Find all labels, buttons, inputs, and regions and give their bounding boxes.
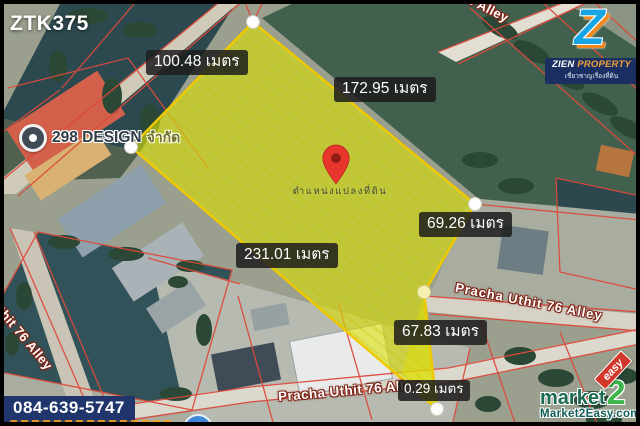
brand-word-zien: ZIEN: [552, 59, 574, 70]
place-name: 298 DESIGN: [52, 129, 142, 147]
agency-logo: ZZ ZIEN PROPERTY เชี่ยวชาญเรื่องที่ดิน: [545, 2, 638, 84]
measurement-label-bottom-tip: 0.29 เมตร: [398, 380, 470, 401]
listing-code: ZTK375: [10, 12, 89, 36]
measurement-label-upper-right: 172.95 เมตร: [334, 77, 436, 102]
brand-word-property: PROPERTY: [577, 59, 631, 70]
cutoff-caption-strip: [10, 420, 175, 425]
place-suffix: จำกัด: [147, 127, 181, 149]
measurement-label-long-left: 231.01 เมตร: [236, 243, 338, 268]
measurement-label-upper-left: 100.48 เมตร: [146, 50, 248, 75]
phone-number: 084-639-5747: [3, 396, 135, 422]
land-listing-image: ZTK375 100.48 เมตร 172.95 เมตร 69.26 เมต…: [0, 0, 640, 426]
agency-name-band: ZIEN PROPERTY เชี่ยวชาญเรื่องที่ดิน: [545, 58, 638, 84]
watermark: market 2 easy Market2Easy.com: [540, 376, 640, 420]
place-marker-icon: [19, 124, 47, 152]
plot-position-label: ตำแหน่งแปลงที่ดิน: [290, 184, 390, 199]
measurement-label-right: 69.26 เมตร: [419, 212, 512, 237]
measurement-label-lower-right: 67.83 เมตร: [394, 320, 487, 345]
place-label: 298 DESIGN จำกัด: [19, 124, 180, 152]
watermark-market: market: [540, 388, 606, 408]
agency-tagline: เชี่ยวชาญเรื่องที่ดิน: [547, 71, 636, 81]
zien-z-icon: ZZ: [545, 2, 638, 58]
satellite-map: [0, 0, 640, 426]
